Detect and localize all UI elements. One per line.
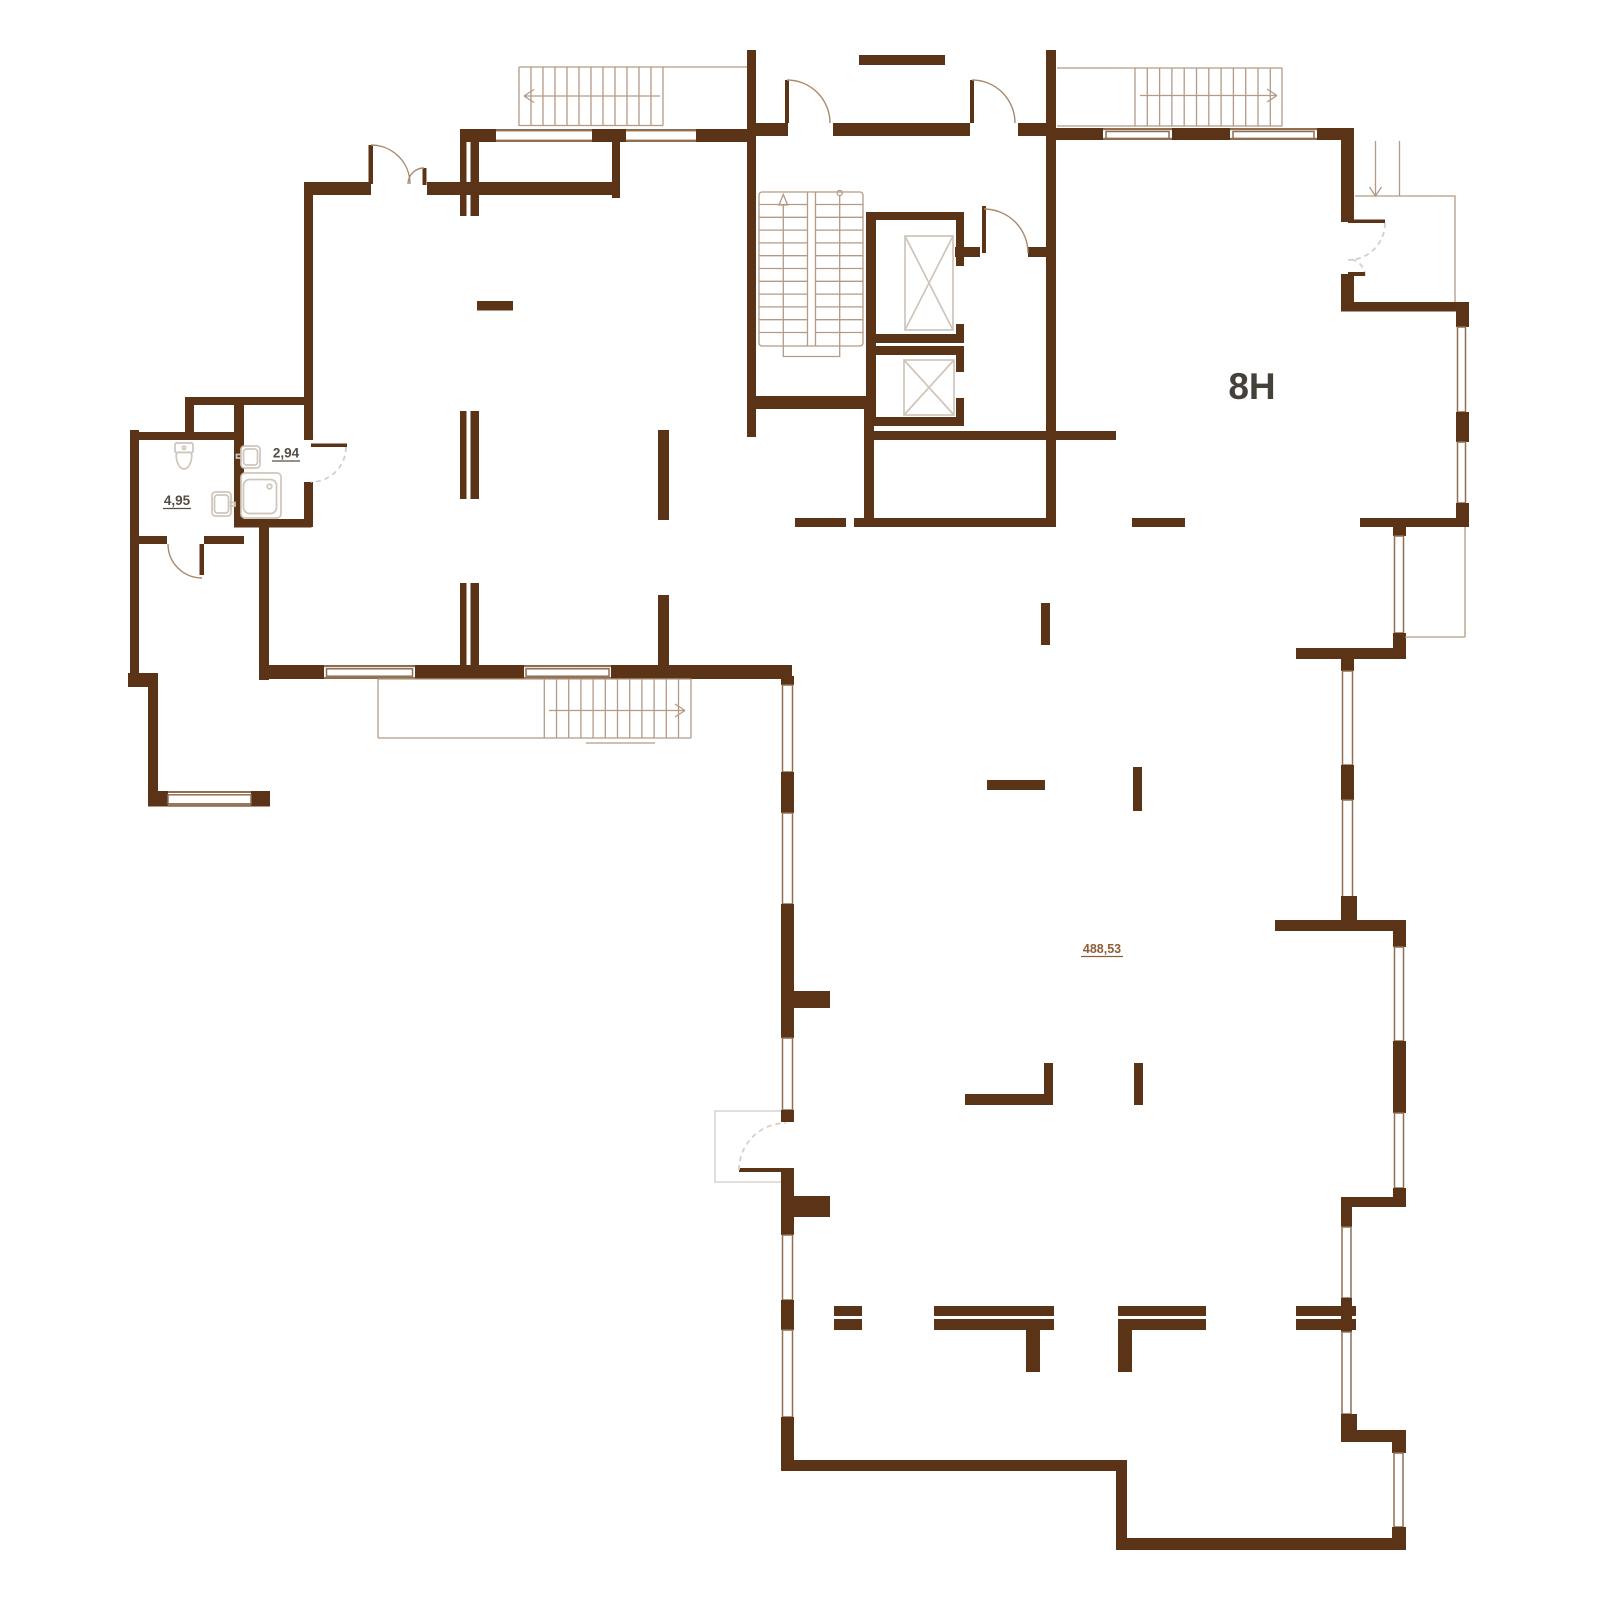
svg-text:488,53: 488,53 xyxy=(1083,942,1121,956)
svg-text:4,95: 4,95 xyxy=(164,493,191,508)
svg-text:8H: 8H xyxy=(1228,366,1275,407)
svg-text:2,94: 2,94 xyxy=(273,446,300,461)
